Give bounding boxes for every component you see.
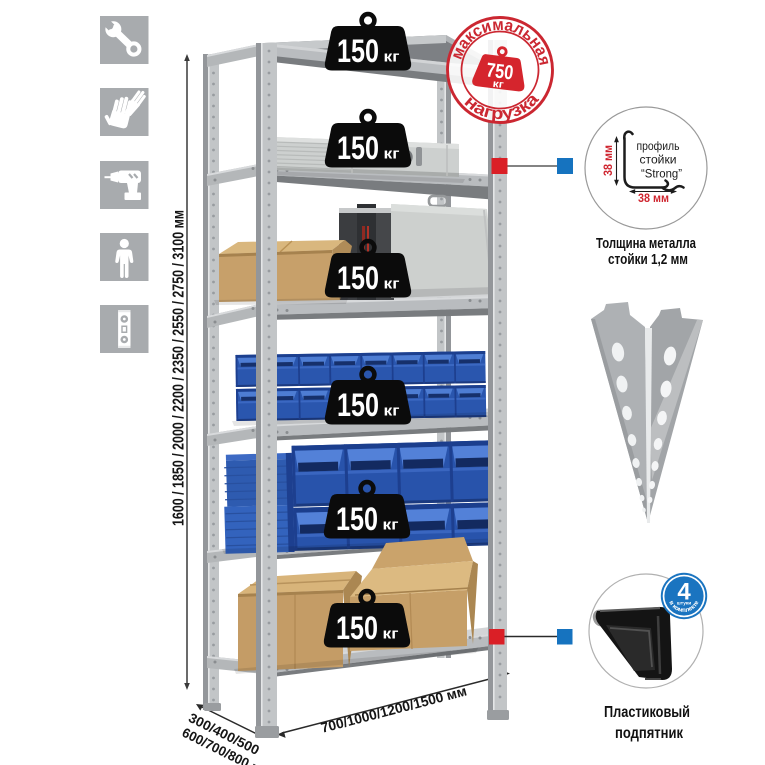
svg-text:кг: кг — [383, 626, 399, 643]
svg-text:150: 150 — [337, 130, 379, 166]
svg-text:1600 / 1850 / 2000 / 2200 / 23: 1600 / 1850 / 2000 / 2200 / 2350 / 2550 … — [171, 210, 188, 526]
svg-text:150: 150 — [337, 260, 379, 296]
svg-text:кг: кг — [492, 78, 505, 91]
svg-text:профиль: профиль — [637, 139, 680, 153]
svg-text:Пластиковый: Пластиковый — [604, 704, 690, 721]
svg-text:150: 150 — [336, 501, 378, 537]
svg-text:150: 150 — [337, 387, 379, 423]
svg-text:стойки: стойки — [640, 153, 677, 167]
svg-text:подпятник: подпятник — [615, 725, 684, 742]
svg-text:Толщина металла: Толщина металла — [596, 236, 697, 252]
svg-text:кг: кг — [384, 146, 400, 163]
svg-text:150: 150 — [336, 610, 378, 646]
svg-text:38 мм: 38 мм — [603, 145, 615, 176]
svg-text:“Strong”: “Strong” — [641, 167, 682, 181]
svg-text:кг: кг — [384, 49, 400, 66]
svg-text:стойки 1,2 мм: стойки 1,2 мм — [608, 252, 688, 268]
svg-text:кг: кг — [384, 276, 400, 293]
svg-text:кг: кг — [384, 403, 400, 420]
svg-text:150: 150 — [337, 33, 379, 69]
svg-text:38 мм: 38 мм — [638, 191, 669, 205]
svg-text:кг: кг — [383, 517, 399, 534]
